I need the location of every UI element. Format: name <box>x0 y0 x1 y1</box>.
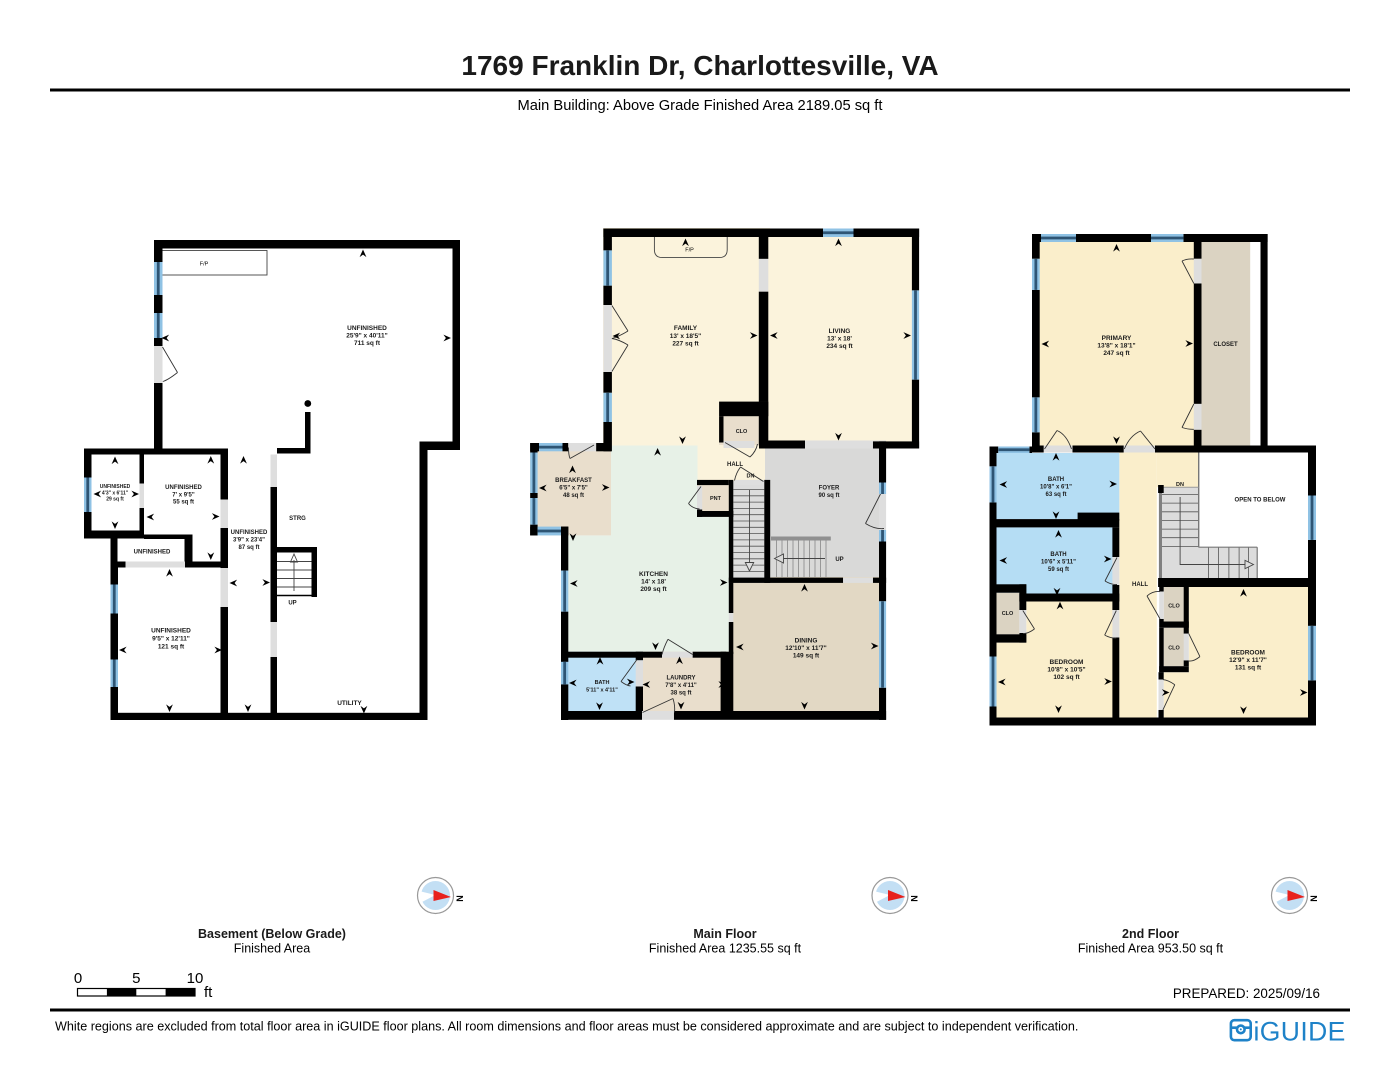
svg-text:BREAKFAST: BREAKFAST <box>555 478 592 484</box>
svg-text:Main Floor: Main Floor <box>693 927 756 941</box>
svg-text:13' x 18': 13' x 18' <box>827 336 852 343</box>
svg-text:N: N <box>909 895 919 902</box>
svg-text:12'9" x 11'7": 12'9" x 11'7" <box>1229 657 1267 664</box>
svg-text:PNT: PNT <box>710 496 722 502</box>
svg-text:1769 Franklin Dr, Charlottesvi: 1769 Franklin Dr, Charlottesville, VA <box>461 50 938 81</box>
svg-text:F/P: F/P <box>200 262 209 268</box>
svg-text:N: N <box>1309 895 1319 902</box>
svg-text:OPEN TO BELOW: OPEN TO BELOW <box>1235 498 1286 504</box>
svg-text:LAUNDRY: LAUNDRY <box>666 676 695 682</box>
svg-text:DINING: DINING <box>795 638 818 645</box>
svg-text:9'5" x 12'11": 9'5" x 12'11" <box>152 636 190 643</box>
svg-text:ft: ft <box>204 984 213 1001</box>
svg-text:CLO: CLO <box>1168 646 1180 652</box>
svg-text:HALL: HALL <box>727 462 743 468</box>
svg-text:STRG: STRG <box>289 516 306 522</box>
svg-text:131 sq ft: 131 sq ft <box>1235 665 1262 672</box>
svg-text:5'11" x 4'11": 5'11" x 4'11" <box>586 688 618 694</box>
svg-text:KITCHEN: KITCHEN <box>639 571 668 578</box>
svg-text:10'6" x 5'11": 10'6" x 5'11" <box>1041 560 1076 566</box>
svg-text:63 sq ft: 63 sq ft <box>1045 492 1066 498</box>
svg-text:90 sq ft: 90 sq ft <box>818 493 839 499</box>
svg-text:BATH: BATH <box>1050 552 1066 558</box>
svg-text:6'5" x 7'5": 6'5" x 7'5" <box>559 486 588 492</box>
svg-text:59 sq ft: 59 sq ft <box>1048 567 1069 573</box>
svg-text:DN: DN <box>1176 482 1184 488</box>
svg-text:5: 5 <box>132 970 140 987</box>
svg-text:38 sq ft: 38 sq ft <box>670 691 691 697</box>
svg-text:7' x 9'5": 7' x 9'5" <box>172 493 195 499</box>
svg-text:149 sq ft: 149 sq ft <box>793 653 820 660</box>
svg-text:711 sq ft: 711 sq ft <box>354 340 381 347</box>
svg-text:iGUIDE: iGUIDE <box>1254 1017 1346 1047</box>
svg-text:DN: DN <box>747 474 755 480</box>
svg-text:14' x 18': 14' x 18' <box>641 579 666 586</box>
svg-text:Finished Area 953.50 sq ft: Finished Area 953.50 sq ft <box>1078 942 1224 956</box>
svg-text:25'9" x 40'11": 25'9" x 40'11" <box>346 333 387 340</box>
svg-text:10'8" x 6'1": 10'8" x 6'1" <box>1040 485 1072 491</box>
svg-text:UNFINISHED: UNFINISHED <box>347 325 387 332</box>
svg-text:UNFINISHED: UNFINISHED <box>100 484 131 490</box>
svg-text:PRIMARY: PRIMARY <box>1102 335 1132 342</box>
svg-text:Basement (Below Grade): Basement (Below Grade) <box>198 927 346 941</box>
svg-text:Finished Area 1235.55 sq ft: Finished Area 1235.55 sq ft <box>649 942 802 956</box>
svg-text:CLO: CLO <box>736 429 748 435</box>
svg-text:LIVING: LIVING <box>829 328 851 335</box>
svg-text:10'8" x 10'5": 10'8" x 10'5" <box>1047 667 1085 674</box>
svg-text:13' x 18'5": 13' x 18'5" <box>670 333 701 340</box>
svg-text:FAMILY: FAMILY <box>674 325 698 332</box>
svg-text:0: 0 <box>74 970 82 987</box>
svg-text:BATH: BATH <box>1048 477 1064 483</box>
svg-text:BEDROOM: BEDROOM <box>1050 659 1084 666</box>
svg-text:HALL: HALL <box>1132 582 1148 588</box>
svg-text:48 sq ft: 48 sq ft <box>563 493 584 499</box>
svg-text:3'9" x 23'4": 3'9" x 23'4" <box>233 538 265 544</box>
svg-text:7'8" x 4'11": 7'8" x 4'11" <box>665 683 697 689</box>
svg-text:CLOSET: CLOSET <box>1213 342 1238 348</box>
svg-text:F/P: F/P <box>685 248 694 254</box>
svg-text:BEDROOM: BEDROOM <box>1231 650 1265 657</box>
svg-text:UNFINISHED: UNFINISHED <box>231 530 268 536</box>
svg-text:29 sq ft: 29 sq ft <box>106 497 124 503</box>
svg-text:BATH: BATH <box>595 680 610 686</box>
svg-text:102 sq ft: 102 sq ft <box>1053 674 1080 681</box>
svg-text:UNFINISHED: UNFINISHED <box>134 550 171 556</box>
svg-text:227 sq ft: 227 sq ft <box>672 341 699 348</box>
svg-text:247 sq ft: 247 sq ft <box>1103 350 1130 357</box>
svg-text:234 sq ft: 234 sq ft <box>826 343 853 350</box>
svg-text:N: N <box>455 895 465 902</box>
svg-text:87 sq ft: 87 sq ft <box>238 545 259 551</box>
svg-text:13'8" x 18'1": 13'8" x 18'1" <box>1097 343 1135 350</box>
svg-text:Finished Area: Finished Area <box>234 942 310 956</box>
svg-text:209 sq ft: 209 sq ft <box>640 586 667 593</box>
svg-text:10: 10 <box>187 970 204 987</box>
svg-text:UP: UP <box>288 601 296 607</box>
svg-text:UTILITY: UTILITY <box>337 700 362 707</box>
svg-text:UP: UP <box>835 557 843 563</box>
svg-text:FOYER: FOYER <box>819 486 840 492</box>
svg-text:121 sq ft: 121 sq ft <box>158 644 185 651</box>
svg-text:CLO: CLO <box>1168 604 1180 610</box>
svg-text:2nd Floor: 2nd Floor <box>1122 927 1179 941</box>
svg-text:Main Building: Above Grade Fin: Main Building: Above Grade Finished Area… <box>518 98 883 114</box>
svg-text:55 sq ft: 55 sq ft <box>173 500 194 506</box>
svg-text:White regions are excluded fro: White regions are excluded from total fl… <box>55 1020 1078 1034</box>
svg-text:12'10" x 11'7": 12'10" x 11'7" <box>785 645 826 652</box>
svg-text:UNFINISHED: UNFINISHED <box>165 485 202 491</box>
svg-text:PREPARED: 2025/09/16: PREPARED: 2025/09/16 <box>1173 986 1320 1001</box>
svg-text:UNFINISHED: UNFINISHED <box>151 628 191 635</box>
svg-text:CLO: CLO <box>1002 611 1014 617</box>
